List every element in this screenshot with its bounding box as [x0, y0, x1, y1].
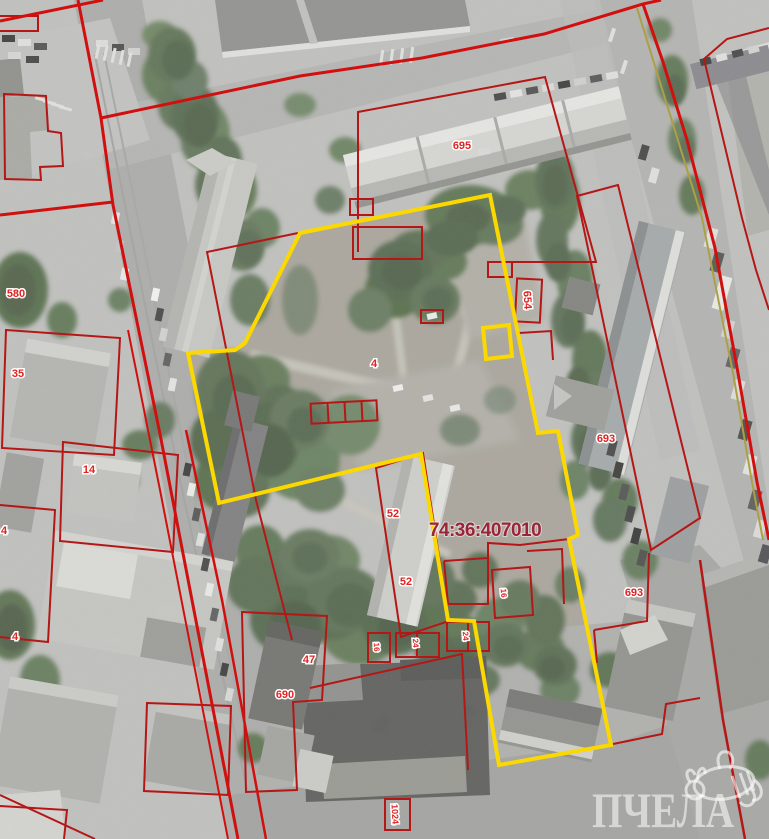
svg-text:ПЧЕЛА: ПЧЕЛА	[592, 782, 734, 838]
svg-text:24: 24	[411, 638, 420, 648]
svg-text:52: 52	[387, 508, 399, 520]
svg-text:1024: 1024	[389, 804, 400, 825]
svg-text:4: 4	[12, 631, 19, 643]
svg-text:24: 24	[461, 631, 470, 641]
svg-text:14: 14	[83, 464, 96, 476]
svg-text:693: 693	[625, 587, 643, 599]
svg-text:47: 47	[303, 654, 315, 666]
svg-text:4: 4	[1, 525, 8, 537]
svg-text:52: 52	[400, 576, 412, 588]
svg-text:695: 695	[453, 140, 471, 152]
svg-text:16: 16	[372, 642, 381, 652]
svg-text:35: 35	[12, 368, 24, 380]
svg-text:580: 580	[7, 288, 25, 300]
svg-text:16: 16	[499, 588, 509, 598]
svg-text:693: 693	[597, 433, 615, 445]
svg-text:690: 690	[276, 689, 294, 701]
svg-text:4: 4	[371, 358, 378, 370]
svg-text:74:36:407010: 74:36:407010	[429, 520, 541, 541]
svg-text:654: 654	[521, 291, 534, 311]
